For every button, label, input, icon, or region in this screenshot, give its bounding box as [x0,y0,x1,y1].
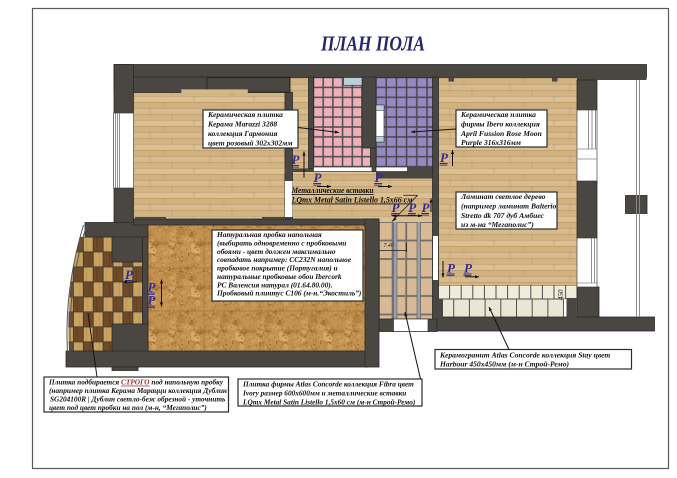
svg-text:Р: Р [422,200,431,215]
svg-text:фирмы Ibero коллекция: фирмы Ibero коллекция [461,120,540,129]
svg-text:Пробковый плинтус С106 (м-н.“Э: Пробковый плинтус С106 (м-н.“Экостиль”) [216,289,361,298]
svg-text:Керамогранит Atlas Concorde ко: Керамогранит Atlas Concorde коллекция St… [439,351,610,360]
svg-text:April Fussion Rose Moon: April Fussion Rose Moon [460,129,542,138]
svg-text:Stretto dk 707 дуб Амбиес: Stretto dk 707 дуб Амбиес [461,211,545,220]
svg-text:Плитка фирмы Atlas Concorde ко: Плитка фирмы Atlas Concorde коллекция Fi… [242,380,414,389]
svg-text:Р: Р [447,261,456,276]
svg-text:Металлические вставки: Металлические вставки [291,186,374,195]
svg-text:ПЛАН ПОЛА: ПЛАН ПОЛА [320,32,425,56]
svg-text:цвет под цвет пробки на пол (м: цвет под цвет пробки на пол (м-н, “Мегап… [49,403,207,412]
svg-text:7.40: 7.40 [384,242,394,249]
svg-text:LQmx Metal Satin Listello 1,5х: LQmx Metal Satin Listello 1,5х66 см [291,196,413,205]
svg-text:Р: Р [125,267,134,282]
svg-text:Р: Р [292,152,301,167]
svg-text:Р: Р [464,261,473,276]
svg-text:Р: Р [440,150,449,165]
svg-text:Р: Р [375,170,384,185]
svg-text:Ламинат светлое дерево: Ламинат светлое дерево [460,192,546,201]
svg-text:цвет розовый 302х302мм: цвет розовый 302х302мм [208,139,293,148]
svg-text:коллекция Гармония: коллекция Гармония [208,129,277,138]
svg-text:Purple 316х316мм: Purple 316х316мм [461,138,521,147]
svg-text:Р: Р [148,293,157,308]
svg-text:Ivory размер 600х600мм и метал: Ivory размер 600х600мм и металлические в… [242,389,406,398]
svg-text:450: 450 [557,289,565,300]
svg-text:из м-на “Мегаполис”): из м-на “Мегаполис”) [461,220,534,229]
svg-text:Harbour 450х450мм (м-н Строй-Р: Harbour 450х450мм (м-н Строй-Ремо) [439,360,570,369]
svg-text:Керамическая плитка: Керамическая плитка [460,110,536,119]
svg-text:Р: Р [314,170,323,185]
svg-text:Керамическая плитка: Керамическая плитка [207,110,283,119]
svg-text:(например ламинат Balterio: (например ламинат Balterio [461,202,557,211]
svg-text:Керама Marazzi 3288: Керама Marazzi 3288 [207,120,277,129]
svg-text:LQmx Metal Satin Listello 1,5х: LQmx Metal Satin Listello 1,5х60 см (м-н… [242,397,415,406]
